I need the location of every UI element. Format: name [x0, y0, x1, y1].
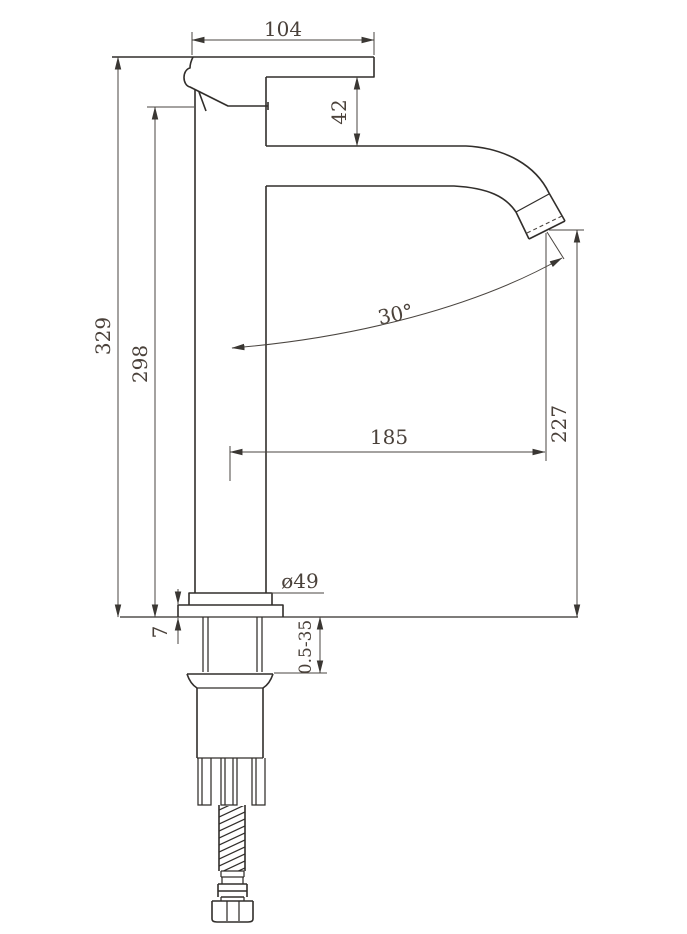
- aerator-line: [516, 194, 549, 212]
- angle-arc: [232, 232, 564, 348]
- dim-label-base-diameter: ø49: [281, 569, 319, 593]
- mounting-shank: [203, 617, 262, 672]
- dim-label-outlet-height: 227: [547, 405, 571, 443]
- supply-hose: [215, 796, 249, 896]
- dim-label-top-width: 104: [264, 17, 302, 41]
- base-flange: [178, 593, 283, 617]
- technical-drawing-canvas: 104 329 298 42 30° 185 227 ø49 7 0.5-35: [0, 0, 687, 934]
- dim-label-spout-reach: 185: [370, 425, 408, 449]
- dim-label-overall-height: 329: [91, 317, 115, 355]
- mounting-nut: [187, 674, 273, 805]
- dim-label-body-height: 298: [128, 345, 152, 383]
- dim-label-spout-angle: 30°: [376, 299, 416, 330]
- hose-end-fitting: [212, 871, 253, 922]
- dimension-labels: 104 329 298 42 30° 185 227 ø49 7 0.5-35: [91, 17, 571, 674]
- dim-label-head-offset: 42: [327, 99, 351, 124]
- spout-outline: [266, 146, 565, 239]
- dim-label-flange-height: 7: [148, 626, 172, 639]
- faucet-drawing: 104 329 298 42 30° 185 227 ø49 7 0.5-35: [0, 0, 687, 934]
- dim-label-clamp-range: 0.5-35: [296, 620, 316, 674]
- dimension-lines: [118, 32, 584, 673]
- faucet-outline: [112, 57, 578, 922]
- faucet-body-outline: [195, 77, 266, 593]
